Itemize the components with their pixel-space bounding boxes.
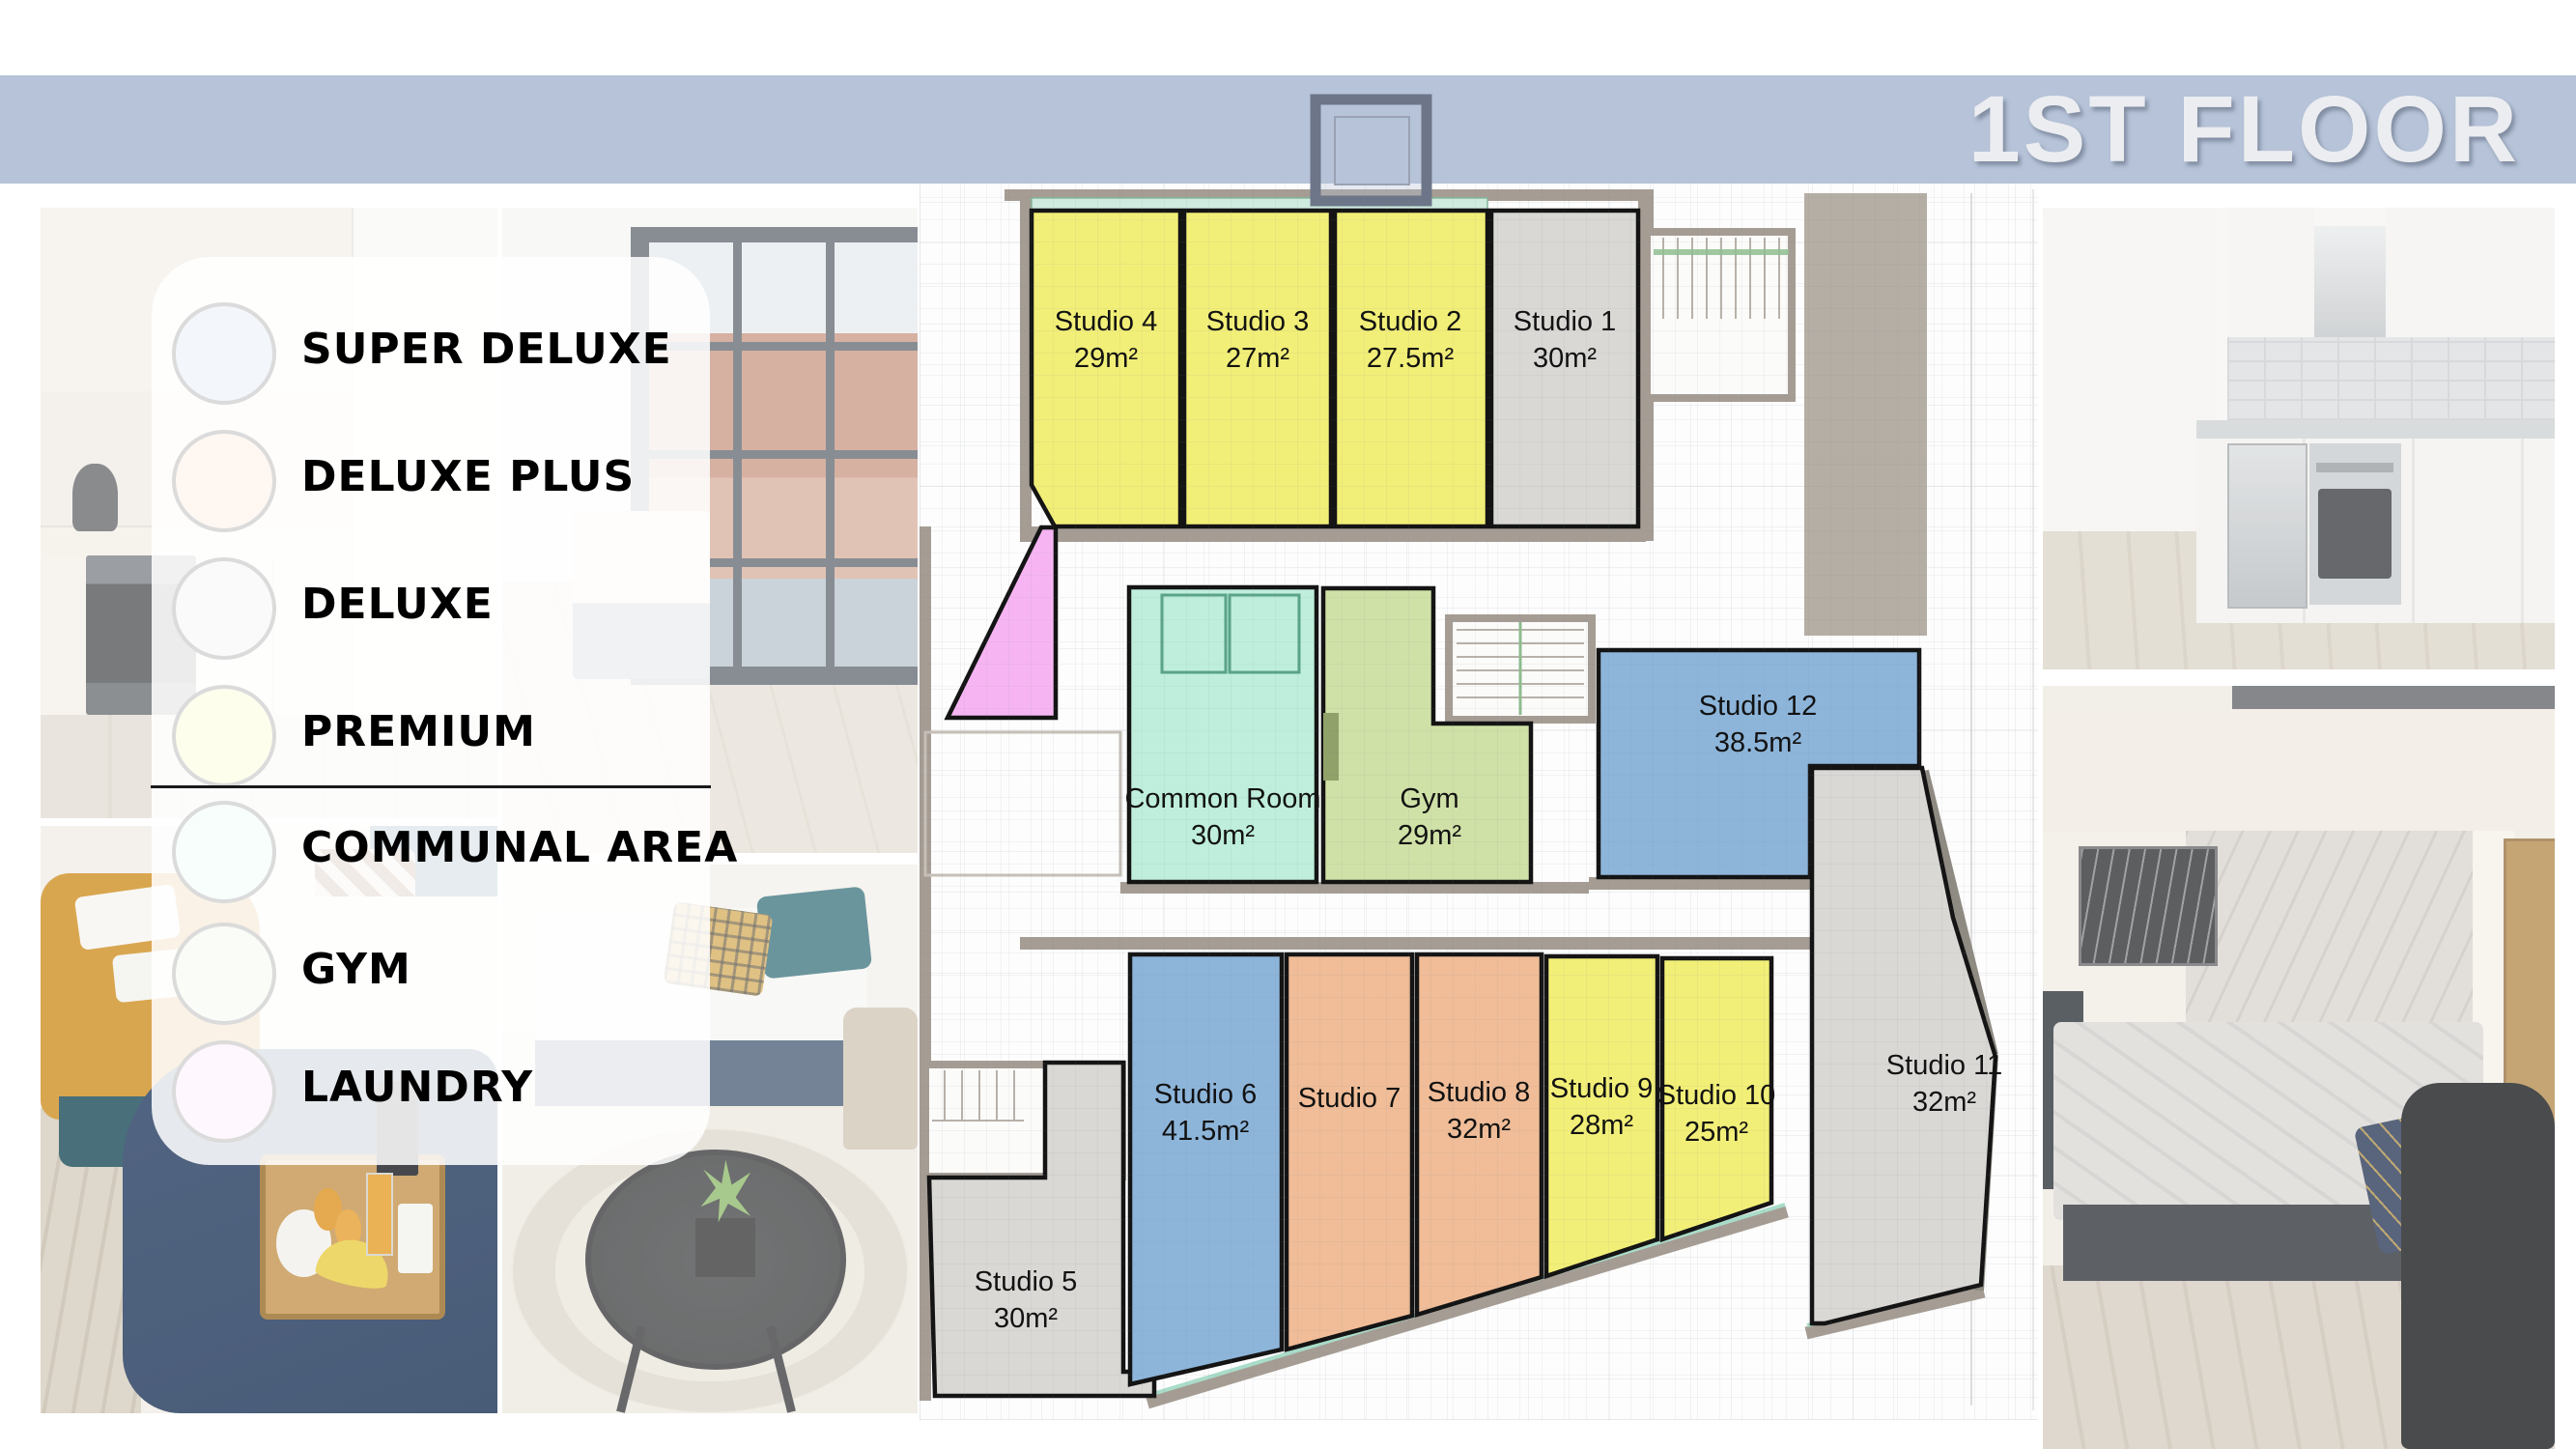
legend-label-deluxe: DELUXE bbox=[301, 580, 494, 629]
label-gym: Gym29m² bbox=[1398, 781, 1461, 854]
stairwell-center bbox=[1449, 618, 1592, 720]
utility-room-outline bbox=[925, 732, 1120, 875]
room-studio-7 bbox=[1287, 954, 1412, 1350]
legend-label-deluxe-plus: DELUXE PLUS bbox=[301, 452, 635, 501]
label-studio-9: Studio 928m² bbox=[1550, 1070, 1653, 1144]
label-studio-8: Studio 832m² bbox=[1428, 1074, 1530, 1148]
room-laundry bbox=[948, 527, 1056, 718]
label-studio-12: Studio 1238.5m² bbox=[1699, 688, 1818, 761]
label-studio-4: Studio 429m² bbox=[1055, 303, 1157, 377]
label-common-room: Common Room30m² bbox=[1124, 781, 1320, 854]
label-studio-10: Studio 1025m² bbox=[1657, 1077, 1776, 1151]
sheet-edge-line-2 bbox=[2032, 189, 2034, 1410]
stairwell-east bbox=[1647, 232, 1792, 398]
label-studio-11: Studio 1132m² bbox=[1886, 1047, 2002, 1121]
legend-label-communal-area: COMMUNAL AREA bbox=[301, 823, 738, 872]
label-studio-3: Studio 327m² bbox=[1206, 303, 1309, 377]
elevator-shaft bbox=[1316, 99, 1427, 201]
page: 1ST FLOOR bbox=[0, 0, 2576, 1449]
adjacent-building-block bbox=[1804, 193, 1927, 636]
legend-divider bbox=[151, 785, 711, 788]
label-studio-7: Studio 7 bbox=[1298, 1080, 1401, 1117]
legend-label-laundry: LAUNDRY bbox=[301, 1063, 533, 1112]
label-studio-2: Studio 227.5m² bbox=[1359, 303, 1461, 377]
gym-equipment-block bbox=[1323, 713, 1339, 781]
legend-label-gym: GYM bbox=[301, 945, 411, 994]
room-studio-11 bbox=[1812, 768, 1996, 1323]
label-studio-6: Studio 641.5m² bbox=[1154, 1076, 1257, 1150]
label-studio-1: Studio 130m² bbox=[1514, 303, 1616, 377]
legend-label-super-deluxe: SUPER DELUXE bbox=[301, 325, 672, 374]
room-studio-6 bbox=[1130, 954, 1282, 1384]
label-studio-5: Studio 530m² bbox=[975, 1264, 1077, 1337]
legend-label-premium: PREMIUM bbox=[301, 707, 536, 756]
